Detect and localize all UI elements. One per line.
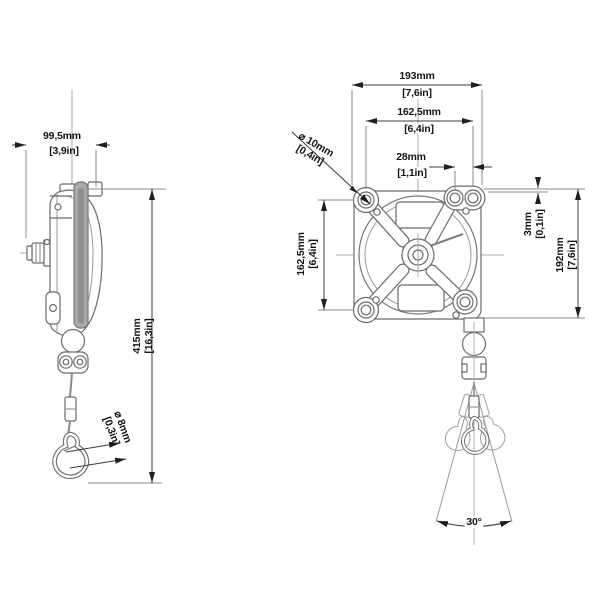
front-slot-bottom xyxy=(398,285,444,311)
side-ball-joint xyxy=(62,330,85,353)
dim-front-height: 192mm [7,6in] xyxy=(554,237,578,272)
swing-cone xyxy=(436,322,512,545)
dim-side-depth-in: [3,9in] xyxy=(49,145,79,157)
drawing-linework xyxy=(0,0,600,600)
dim-side-height: 415mm [16,3in] xyxy=(131,318,155,353)
dim-front-width-mm: 193mm xyxy=(399,70,434,82)
side-plate-hole-bottom xyxy=(50,305,57,312)
dim-hole-spacing-v-mm: 162,5mm xyxy=(295,232,307,276)
side-view xyxy=(27,182,102,477)
dim-bracket-offset-mm: 3mm xyxy=(522,209,534,239)
tension-knob xyxy=(27,240,50,267)
side-plate-hole-top xyxy=(55,204,61,210)
side-cable xyxy=(70,373,72,397)
dim-side-height-mm: 415mm xyxy=(131,318,143,353)
dim-front-width-in: [7,6in] xyxy=(400,87,434,99)
dim-bracket-offset: 3mm [0,1in] xyxy=(522,209,546,239)
dim-hole-offset-in: [1,1in] xyxy=(395,167,429,179)
dim-hole-spacing-v: 162,5mm [6,4in] xyxy=(295,232,319,276)
dim-hole-spacing-h-mm: 162,5mm xyxy=(397,106,441,118)
swing-angle-label: 30° xyxy=(464,516,483,528)
dim-front-height-mm: 192mm xyxy=(554,237,566,272)
dim-bracket-offset-in: [0,1in] xyxy=(534,209,546,239)
technical-drawing-page: 99,5mm [3,9in] 415mm [16,3in] ⌀ 8mm [0,3… xyxy=(0,0,600,600)
dim-front-height-in: [7,6in] xyxy=(566,237,578,272)
dim-hole-spacing-v-in: [6,4in] xyxy=(307,232,319,276)
dim-hole-offset-mm: 28mm xyxy=(396,151,426,163)
dim-side-height-in: [16,3in] xyxy=(143,318,155,353)
dim-side-depth-mm: 99,5mm xyxy=(43,130,81,142)
side-carabiner-hook xyxy=(55,434,87,477)
front-view xyxy=(354,188,513,546)
dim-hole-spacing-h-in: [6,4in] xyxy=(402,123,436,135)
